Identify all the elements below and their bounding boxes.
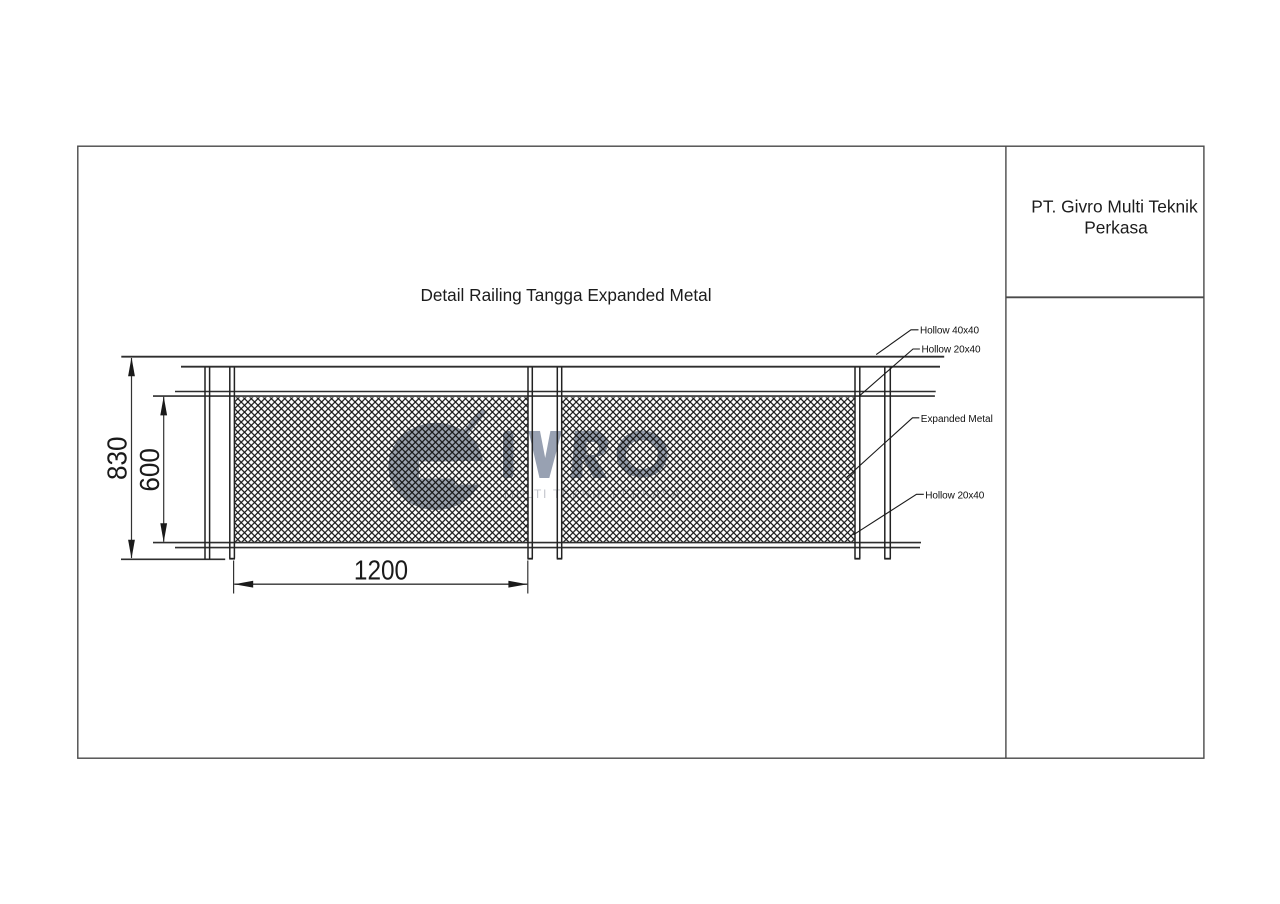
svg-text:1200: 1200 bbox=[354, 555, 408, 586]
svg-text:Perkasa: Perkasa bbox=[1084, 218, 1148, 238]
svg-text:830: 830 bbox=[102, 437, 133, 481]
svg-text:Hollow 20x40: Hollow 20x40 bbox=[922, 344, 981, 355]
svg-text:600: 600 bbox=[134, 448, 165, 492]
svg-text:Hollow 40x40: Hollow 40x40 bbox=[920, 325, 979, 336]
svg-text:Expanded Metal: Expanded Metal bbox=[921, 414, 993, 425]
svg-text:PT. Givro Multi Teknik: PT. Givro Multi Teknik bbox=[1031, 197, 1198, 217]
svg-text:Hollow 20x40: Hollow 20x40 bbox=[925, 490, 984, 501]
svg-text:Detail Railing Tangga Expanded: Detail Railing Tangga Expanded Metal bbox=[420, 285, 711, 305]
